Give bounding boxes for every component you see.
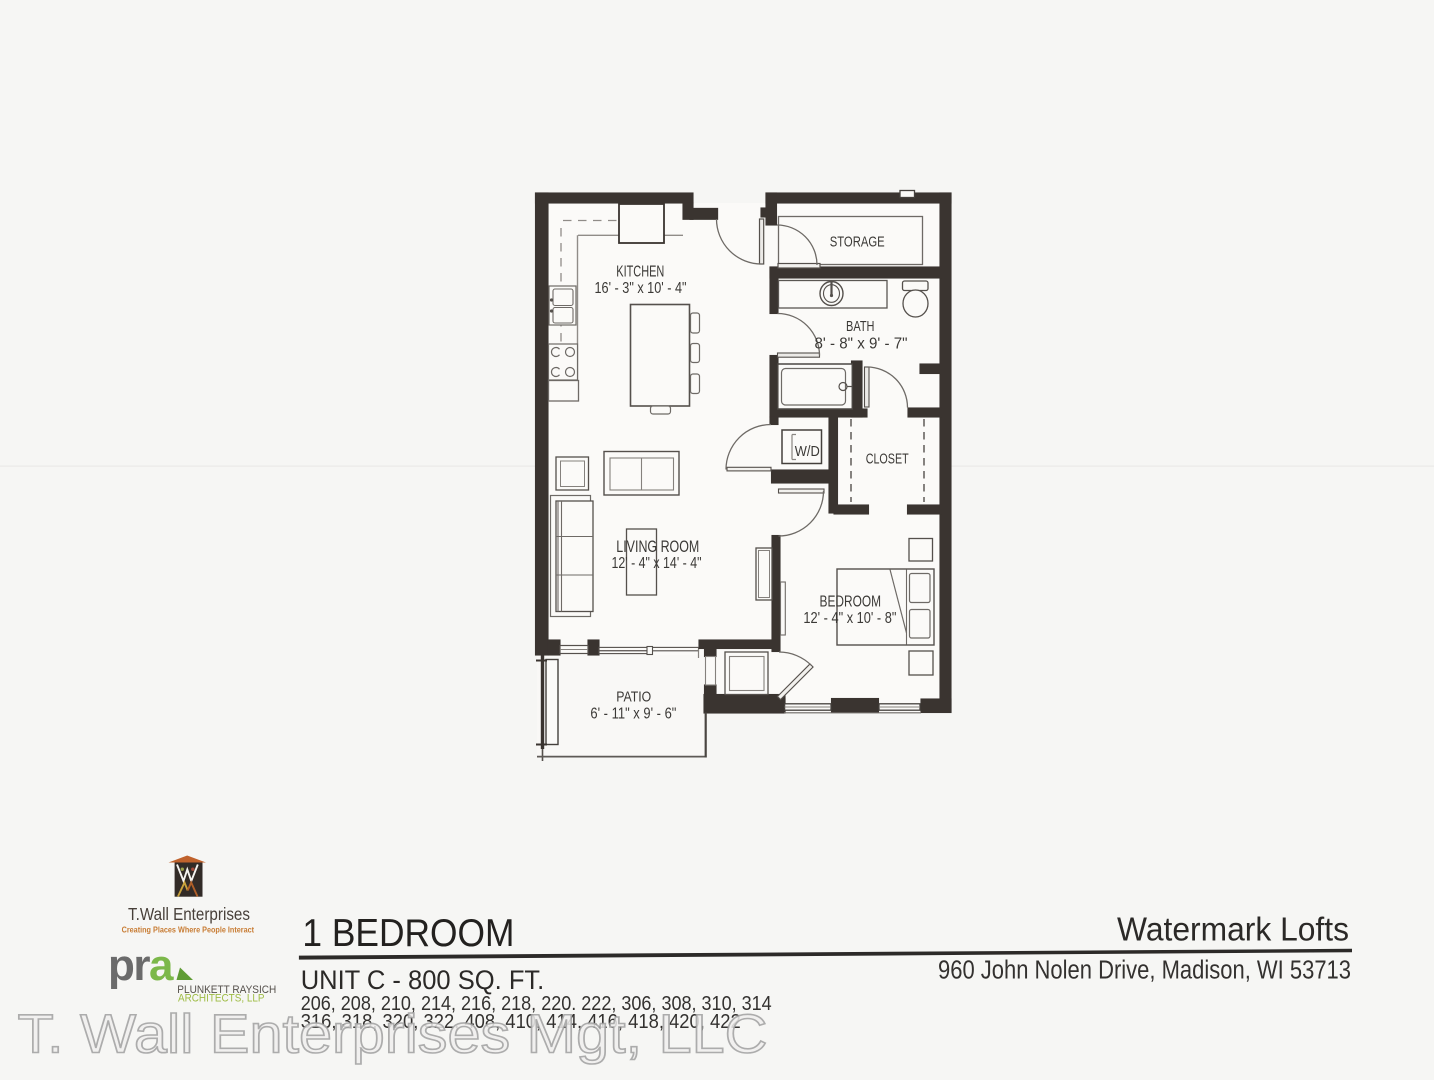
svg-text:6' - 11" x 9' - 6": 6' - 11" x 9' - 6" — [590, 705, 676, 722]
svg-text:PATIO: PATIO — [616, 688, 651, 705]
svg-text:12' - 4" x 14' - 4": 12' - 4" x 14' - 4" — [612, 555, 702, 572]
svg-text:1 BEDROOM: 1 BEDROOM — [302, 912, 514, 955]
svg-text:CLOSET: CLOSET — [866, 452, 909, 468]
svg-text:UNIT C - 800 SQ. FT.: UNIT C - 800 SQ. FT. — [301, 965, 545, 995]
svg-text:Watermark Lofts: Watermark Lofts — [1117, 911, 1349, 948]
svg-text:BEDROOM: BEDROOM — [820, 594, 882, 611]
svg-text:T. Wall Enterprises Mgt, LLC: T. Wall Enterprises Mgt, LLC — [18, 1003, 768, 1065]
svg-text:W/D: W/D — [795, 444, 820, 460]
svg-text:16' - 3" x 10' - 4": 16' - 3" x 10' - 4" — [595, 280, 687, 297]
svg-text:Creating Places Where People I: Creating Places Where People Interact — [122, 925, 255, 935]
svg-text:BATH: BATH — [846, 319, 875, 335]
svg-text:KITCHEN: KITCHEN — [616, 264, 664, 281]
svg-text:12' - 4" x 10' - 8": 12' - 4" x 10' - 8" — [803, 610, 896, 627]
svg-text:LIVING ROOM: LIVING ROOM — [616, 538, 699, 556]
svg-text:STORAGE: STORAGE — [830, 234, 885, 250]
svg-text:T.Wall Enterprises: T.Wall Enterprises — [128, 904, 250, 924]
svg-text:pra: pra — [108, 941, 174, 990]
svg-text:8' - 8" x 9' - 7": 8' - 8" x 9' - 7" — [815, 335, 908, 352]
svg-text:960 John Nolen Drive, Madison,: 960 John Nolen Drive, Madison, WI 53713 — [938, 957, 1351, 985]
